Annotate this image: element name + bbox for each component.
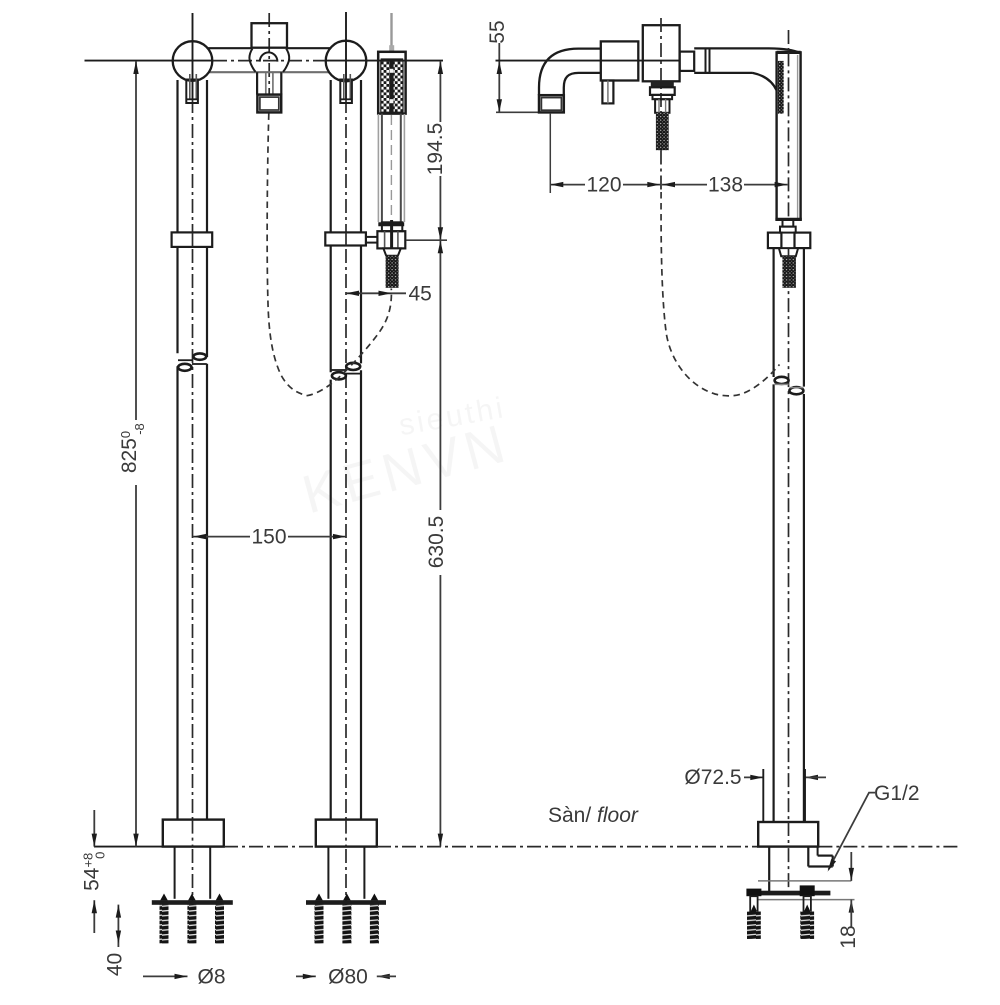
svg-text:Ø72.5: Ø72.5 [684,766,741,789]
svg-text:150: 150 [251,526,286,549]
svg-text:55: 55 [486,20,509,43]
svg-text:40: 40 [103,953,126,976]
svg-text:Ø8: Ø8 [198,966,226,989]
svg-text:-8: -8 [132,423,147,435]
svg-text:138: 138 [708,174,743,197]
svg-text:18: 18 [837,925,860,948]
svg-text:630.5: 630.5 [425,516,448,569]
svg-text:G1/2: G1/2 [874,782,920,805]
svg-text:45: 45 [409,283,432,306]
svg-text:0: 0 [93,852,108,859]
svg-text:120: 120 [586,174,621,197]
svg-text:Sàn/ floor: Sàn/ floor [548,804,639,827]
svg-text:Ø80: Ø80 [328,966,368,989]
svg-text:194.5: 194.5 [424,123,447,176]
